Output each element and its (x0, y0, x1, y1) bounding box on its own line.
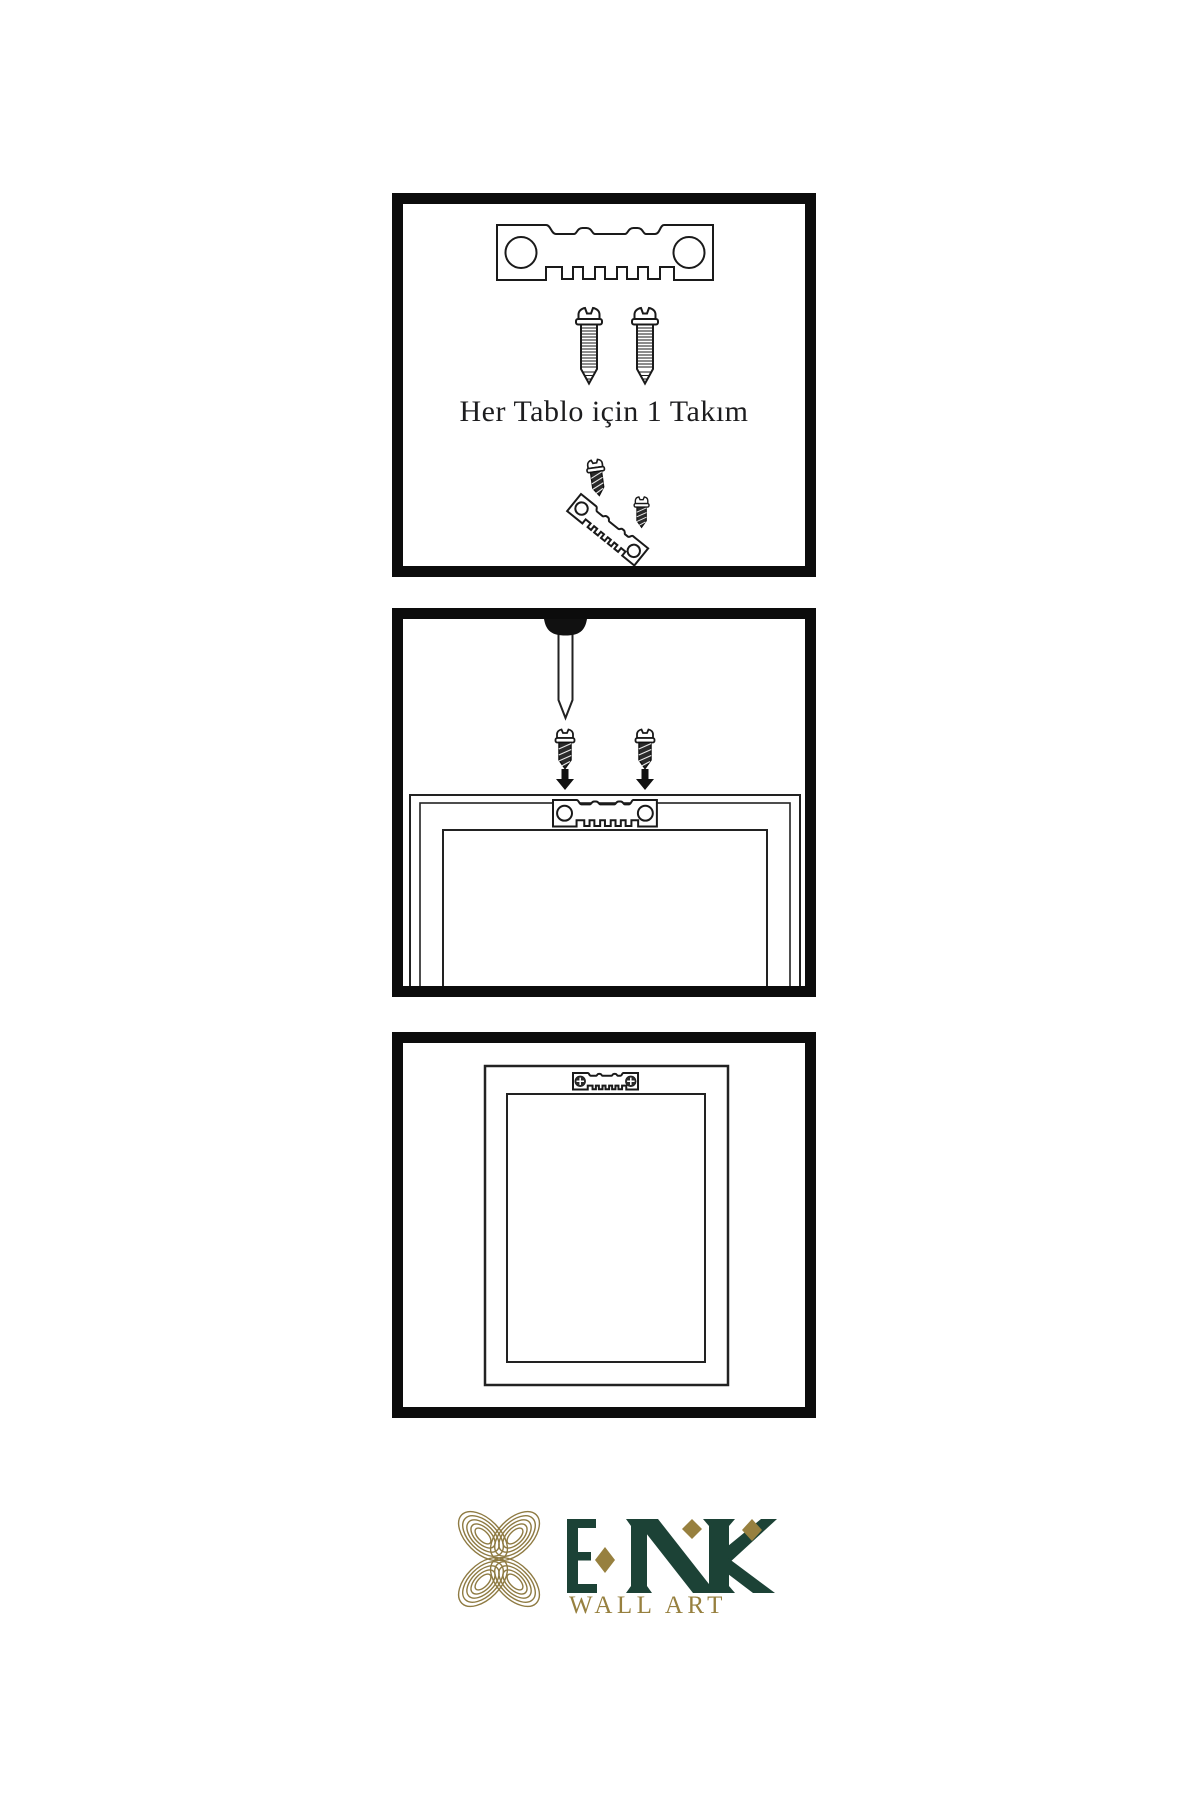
screw-icon (576, 308, 602, 384)
small-screw-icon (636, 730, 655, 769)
phillips-screw-icon (575, 1076, 585, 1086)
mounted-frame-illustration (392, 1032, 816, 1418)
down-arrow-icon (556, 769, 574, 790)
sawtooth-hanger-icon (553, 800, 657, 826)
instruction-panel-2 (392, 608, 816, 997)
instruction-panel-1: Her Tablo için 1 Takım (392, 193, 816, 577)
small-screw-icon (634, 497, 649, 527)
down-arrow-icon (636, 769, 654, 790)
phillips-screw-icon (626, 1076, 636, 1086)
sawtooth-hanger-icon (497, 225, 713, 280)
enk-wordmark: ENK (567, 1516, 779, 1596)
wall-nail-icon (544, 619, 587, 718)
brand-subtitle: WALL ART (569, 1592, 809, 1620)
small-screw-icon (556, 730, 575, 769)
panel-caption: Her Tablo için 1 Takım (392, 395, 816, 429)
attach-hanger-illustration (392, 608, 816, 997)
diamond-accent-icon (595, 1519, 762, 1573)
instruction-panel-3 (392, 1032, 816, 1418)
small-screw-icon (586, 459, 608, 497)
page: Her Tablo için 1 Takım (0, 0, 1200, 1800)
hardware-set-illustration (392, 193, 816, 577)
enk-knot-icon (437, 1490, 561, 1628)
frame-back-icon (485, 1066, 728, 1385)
screw-icon (632, 308, 658, 384)
enk-letters (567, 1519, 777, 1593)
